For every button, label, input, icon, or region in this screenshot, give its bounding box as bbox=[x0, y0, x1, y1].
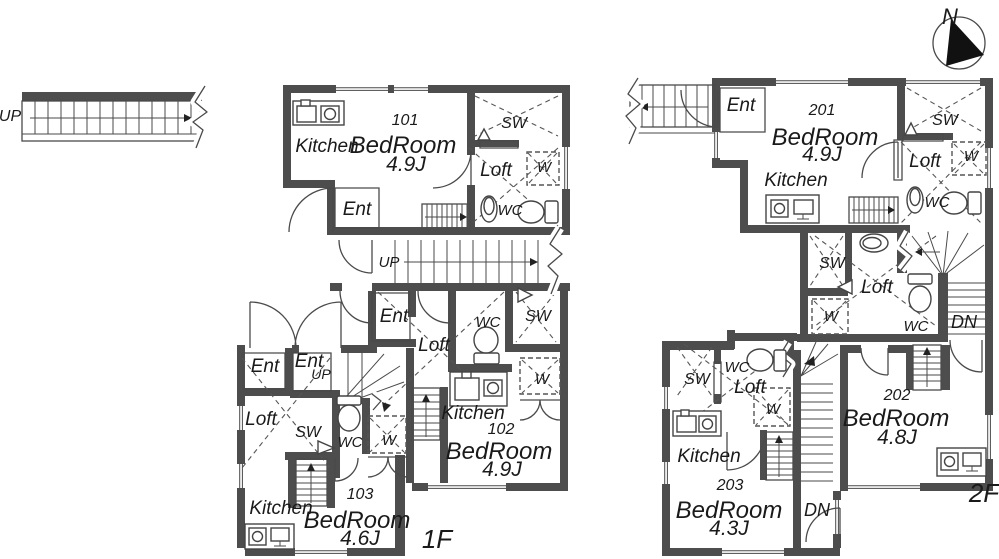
sink-icon bbox=[455, 378, 479, 400]
burner-icon bbox=[253, 532, 263, 542]
loft-stair-202 bbox=[913, 345, 941, 390]
loft-stair-203 bbox=[766, 432, 793, 480]
room-label-sw-202: SW bbox=[819, 255, 847, 272]
unit-number-103: 103 bbox=[347, 486, 374, 503]
room-label-w-202: W bbox=[824, 308, 840, 325]
faucet-icon bbox=[462, 372, 471, 378]
room-label-w-203: W bbox=[766, 401, 782, 418]
floor-1-plan: Kitchen 101 BedRoom 4.9J Ent SW Loft W W… bbox=[237, 85, 570, 556]
toilet-icon bbox=[747, 349, 773, 371]
sink-basin-icon bbox=[863, 238, 881, 249]
stair-outline bbox=[22, 101, 200, 141]
stair-treads bbox=[395, 240, 538, 283]
north-compass: N bbox=[933, 4, 985, 69]
sink-icon bbox=[677, 416, 696, 432]
toilet-tank-icon bbox=[968, 192, 981, 214]
room-label-sw-101: SW bbox=[501, 115, 529, 132]
room-label-w-102: W bbox=[535, 371, 551, 388]
room-label-wc-103: WC bbox=[338, 434, 363, 451]
toilet-icon bbox=[909, 286, 931, 312]
sink-icon bbox=[963, 453, 981, 466]
floor-2-plan: Ent 201 BedRoom 4.9J Kitchen SW Loft W W… bbox=[626, 78, 999, 556]
burner-icon bbox=[703, 419, 713, 429]
floor-label-2f: 2F bbox=[968, 478, 999, 508]
room-label-ent-201: Ent bbox=[727, 95, 756, 116]
room-label-sw-102: SW bbox=[525, 308, 553, 325]
dn-label-upper: DN bbox=[951, 312, 978, 332]
toilet-tank-icon bbox=[908, 274, 932, 284]
room-label-ent-102: Ent bbox=[380, 306, 409, 327]
toilet-tank-icon bbox=[774, 350, 786, 371]
burner-icon bbox=[488, 383, 499, 394]
room-label-wc-102: WC bbox=[476, 314, 501, 331]
kitchen-103-counter bbox=[245, 524, 294, 549]
stair-treads bbox=[852, 197, 894, 223]
stair-treads bbox=[913, 351, 941, 387]
hall-up-label: UP bbox=[379, 254, 400, 271]
burner-icon bbox=[775, 204, 785, 214]
room-label-ent-103: Ent bbox=[251, 356, 280, 377]
unit-number-102: 102 bbox=[488, 421, 515, 438]
wall bbox=[22, 92, 202, 101]
room-label-kitchen-201: Kitchen bbox=[764, 170, 827, 191]
wc-103-fixtures bbox=[337, 396, 361, 431]
loft-stair-201 bbox=[849, 197, 898, 223]
room-size-101: 4.9J bbox=[386, 153, 426, 176]
burner-icon bbox=[325, 109, 336, 120]
room-size-202: 4.8J bbox=[877, 426, 917, 449]
unit-number-201: 201 bbox=[808, 102, 836, 119]
room-label-ent-101: Ent bbox=[343, 199, 372, 220]
room-label-loft-203: Loft bbox=[734, 377, 766, 398]
wc-203-fixtures bbox=[747, 349, 786, 371]
kitchen-102-counter bbox=[450, 372, 507, 406]
kitchen-201-counter bbox=[766, 195, 819, 223]
room-label-sw-103: SW bbox=[295, 424, 323, 441]
room-label-kitchen-203: Kitchen bbox=[677, 446, 740, 467]
room-label-wc-201: WC bbox=[925, 194, 950, 211]
floor-label-1f: 1F bbox=[422, 524, 454, 554]
room-label-sw-201: SW bbox=[932, 112, 960, 129]
room-label-wc-203: WC bbox=[725, 359, 750, 376]
sink-basin-icon bbox=[484, 198, 494, 215]
wc-102-fixtures bbox=[474, 327, 499, 364]
stair-treads bbox=[630, 85, 715, 133]
approach-up-label: UP bbox=[0, 108, 21, 125]
room-label-w-101: W bbox=[537, 159, 553, 176]
arrow-icon bbox=[530, 258, 538, 266]
burner-icon bbox=[945, 457, 955, 467]
toilet-tank-icon bbox=[337, 396, 361, 405]
north-label: N bbox=[942, 4, 958, 29]
room-size-203: 4.3J bbox=[709, 517, 749, 540]
sink-icon bbox=[794, 200, 813, 214]
room-label-wc-202: WC bbox=[904, 318, 929, 335]
faucet-icon bbox=[301, 100, 310, 106]
unit-number-202: 202 bbox=[883, 387, 911, 404]
room-size-102: 4.9J bbox=[482, 458, 522, 481]
arrow-icon bbox=[307, 463, 315, 471]
room-label-loft-103: Loft bbox=[245, 409, 277, 430]
floorplan-page: UP N bbox=[0, 0, 999, 559]
unit-number-203: 203 bbox=[716, 477, 744, 494]
sink-icon bbox=[297, 106, 316, 122]
room-label-w-103: W bbox=[382, 432, 398, 449]
stair-treads bbox=[766, 439, 793, 477]
room-label-wc-101: WC bbox=[498, 202, 523, 219]
kitchen-202-counter bbox=[937, 448, 986, 476]
loft-stair-102 bbox=[412, 388, 440, 440]
room-label-loft-202: Loft bbox=[861, 277, 893, 298]
room-label-sw-203: SW bbox=[684, 371, 712, 388]
arrow-icon bbox=[460, 213, 467, 221]
approach-stair-2f bbox=[626, 78, 715, 144]
toilet-icon bbox=[338, 405, 360, 431]
toilet-tank-icon bbox=[545, 201, 558, 223]
room-size-103: 4.6J bbox=[340, 527, 380, 550]
approach-stair: UP bbox=[0, 86, 207, 148]
ent2-up-label: UP bbox=[311, 366, 331, 382]
loft-stair-101 bbox=[422, 204, 470, 229]
room-label-loft-101: Loft bbox=[480, 160, 512, 181]
room-label-loft-102: Loft bbox=[418, 335, 450, 356]
unit-number-101: 101 bbox=[392, 112, 419, 129]
room-label-loft-201: Loft bbox=[909, 151, 941, 172]
floorplan-drawing: UP N bbox=[0, 0, 999, 559]
kitchen-203-counter bbox=[673, 410, 721, 436]
faucet-icon bbox=[681, 410, 689, 416]
room-label-w-201: W bbox=[964, 148, 980, 165]
toilet-tank-icon bbox=[474, 353, 499, 364]
arrow-icon bbox=[382, 402, 391, 412]
dn-label-lower: DN bbox=[804, 500, 831, 520]
sink-basin-icon bbox=[910, 189, 920, 206]
common-stair-lower-2f bbox=[780, 342, 838, 481]
sink-icon bbox=[271, 528, 289, 541]
room-size-201: 4.9J bbox=[802, 143, 842, 166]
kitchen-101-counter bbox=[293, 100, 344, 125]
